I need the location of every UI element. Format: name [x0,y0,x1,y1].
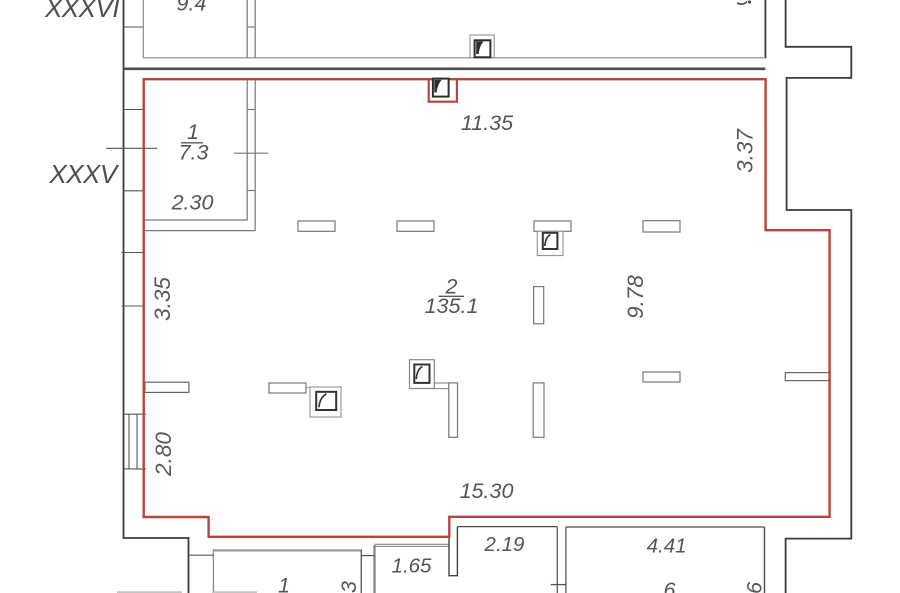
svg-text:6: 6 [743,582,767,593]
svg-text:7.3: 7.3 [179,141,209,165]
svg-text:XXXV: XXXV [48,159,120,189]
svg-text:3.37: 3.37 [733,128,758,173]
svg-text:2.80: 2.80 [151,432,176,477]
svg-text:2.19: 2.19 [484,533,525,556]
svg-text:11.35: 11.35 [461,111,514,135]
svg-text:3: 3 [337,581,361,593]
svg-text:1.65: 1.65 [392,555,432,578]
svg-text:9.4: 9.4 [177,0,207,16]
svg-text:3.35: 3.35 [150,277,175,321]
svg-text:4.41: 4.41 [647,535,687,558]
svg-text:6: 6 [664,578,676,593]
svg-text:1: 1 [278,574,290,593]
svg-text:15.30: 15.30 [460,479,514,503]
svg-text:XXXVI: XXXVI [44,0,119,23]
svg-text:135.1: 135.1 [425,294,479,318]
svg-text:2.30: 2.30 [171,191,214,215]
svg-text:9.78: 9.78 [623,275,648,319]
